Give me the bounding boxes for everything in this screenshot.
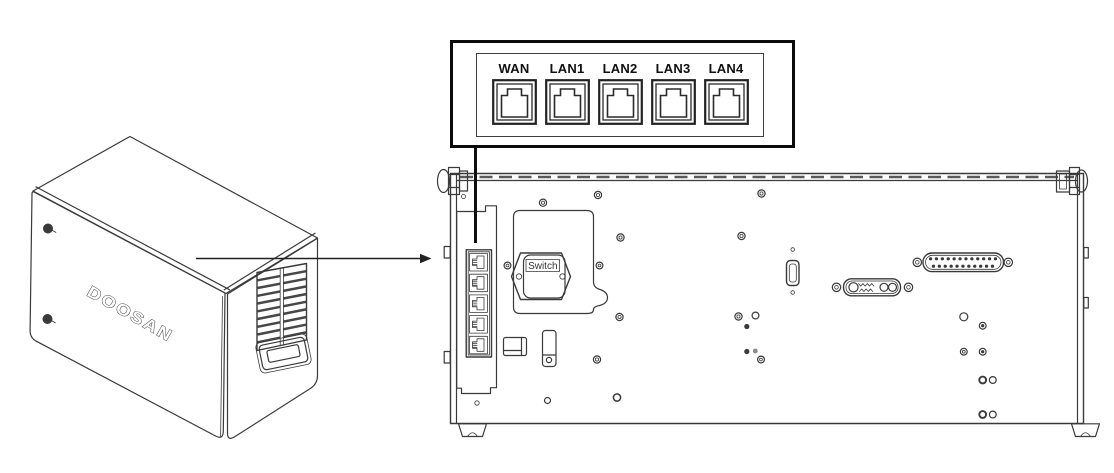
port-label: LAN4	[709, 61, 744, 77]
box-edge-highlights	[36, 187, 315, 437]
port-item-wan: WAN	[492, 61, 537, 136]
mounting-screws	[43, 224, 56, 325]
panel-feet	[459, 424, 1100, 437]
arrow-right-icon	[190, 248, 440, 268]
diagram-canvas: DOOSAN	[0, 0, 1114, 473]
rj45-port-icon	[651, 79, 696, 125]
ethernet-ports-callout: WAN LAN1 LAN2	[450, 40, 795, 148]
rear-panel-drawing: Switch	[435, 150, 1114, 450]
screw-icon	[43, 224, 53, 234]
rj45-port-icon	[545, 79, 590, 125]
ports-inner-frame: WAN LAN1 LAN2	[476, 53, 764, 137]
port-item-lan1: LAN1	[545, 61, 590, 136]
screw-icon	[43, 314, 53, 324]
port-item-lan2: LAN2	[598, 61, 643, 136]
doosan-logo: DOOSAN	[84, 284, 176, 346]
port-label: LAN3	[656, 61, 691, 77]
port-item-lan3: LAN3	[651, 61, 696, 136]
rj45-port-icon	[598, 79, 643, 125]
rj45-port-icon	[492, 79, 537, 125]
callout-leader-line	[474, 147, 477, 243]
port-label: WAN	[499, 61, 530, 77]
port-label: LAN1	[550, 61, 585, 77]
controller-box-drawing: DOOSAN	[10, 125, 355, 460]
rj45-port-icon	[704, 79, 749, 125]
port-item-lan4: LAN4	[704, 61, 749, 136]
port-label: LAN2	[603, 61, 638, 77]
switch-label: Switch	[528, 261, 557, 272]
